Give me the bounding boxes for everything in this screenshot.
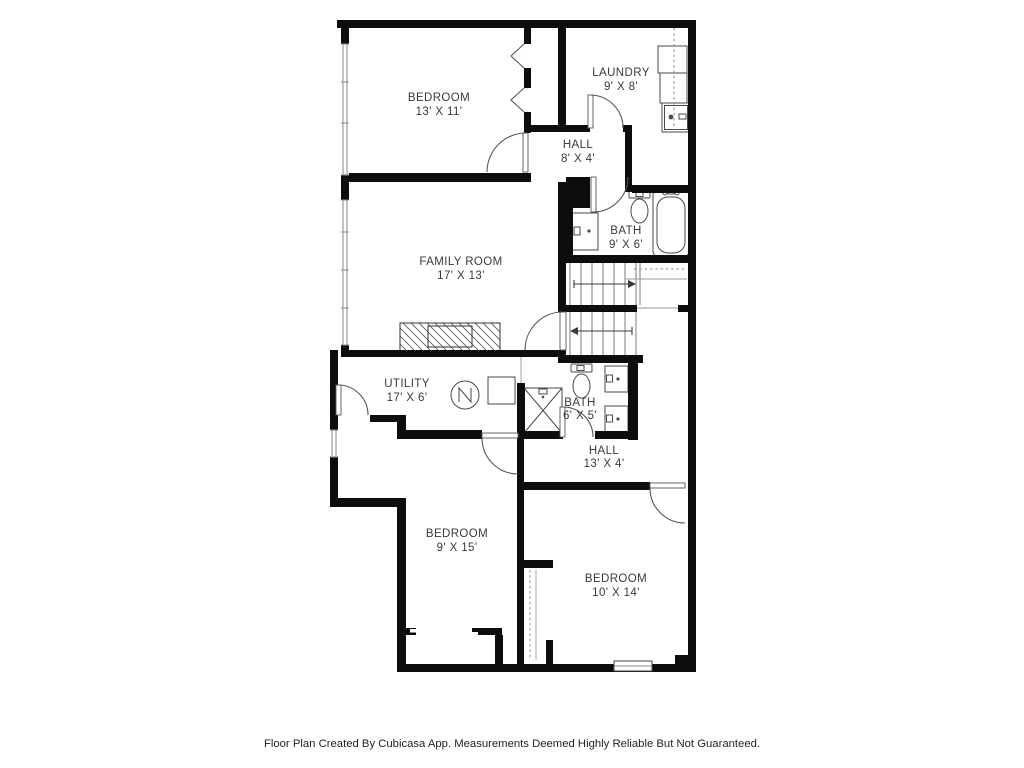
room-dims: 17' X 13' [437, 270, 485, 282]
window [330, 430, 338, 457]
room-dims: 8' X 4' [561, 153, 595, 165]
room-name: BEDROOM [408, 92, 470, 104]
room-name: FAMILY ROOM [419, 256, 502, 268]
room-name: UTILITY [384, 378, 430, 390]
fixtures-layer [400, 46, 690, 433]
door-swing [591, 177, 628, 212]
equipment-box-icon [488, 377, 515, 404]
room-name: BEDROOM [585, 573, 647, 585]
closet-rod-icon [530, 570, 536, 660]
window [341, 200, 349, 345]
door-swing [588, 95, 623, 128]
room-dims: 9' X 15' [437, 542, 478, 554]
bathtub-icon [653, 189, 689, 257]
room-label-hall-upper: HALL 8' X 4' [561, 139, 595, 165]
room-label-bedroom-left: BEDROOM 9' X 15' [426, 528, 488, 554]
room-label-bedroom-right: BEDROOM 10' X 14' [585, 573, 647, 599]
room-name: BATH [564, 397, 595, 409]
room-label-bath-lower: BATH 6' X 5' [563, 397, 597, 422]
fireplace-icon [400, 323, 500, 352]
door-swing [650, 483, 685, 523]
room-label-family-room: FAMILY ROOM 17' X 13' [419, 256, 502, 282]
door-swing [487, 133, 528, 172]
toilet-icon [571, 364, 592, 398]
room-label-utility: UTILITY 17' X 6' [384, 378, 430, 404]
room-name: LAUNDRY [592, 67, 650, 79]
toilet-icon [629, 190, 650, 223]
room-label-laundry: LAUNDRY 9' X 8' [592, 67, 650, 93]
door-swing [525, 312, 566, 350]
stair-treads-lower [570, 312, 636, 355]
door-swing [336, 385, 368, 415]
room-name: HALL [563, 139, 594, 151]
room-name: BATH [610, 225, 641, 237]
room-dims: 13' X 11' [416, 106, 463, 118]
room-name: HALL [589, 445, 620, 457]
shower-icon [524, 388, 562, 433]
window [341, 44, 349, 175]
room-dims: 6' X 5' [563, 410, 597, 422]
stairs-down-arrow [570, 327, 632, 335]
water-heater-icon [451, 381, 479, 409]
double-sink-vanity-icon [605, 366, 628, 432]
room-name: BEDROOM [426, 528, 488, 540]
sink-vanity-icon [572, 213, 598, 250]
room-dims: 17' X 6' [387, 392, 428, 404]
bifold-closet-door-icon [511, 44, 524, 112]
room-dims: 9' X 6' [609, 239, 643, 251]
floor-plan-svg: BEDROOM 13' X 11' LAUNDRY 9' X 8' HALL 8… [0, 0, 1024, 768]
room-dims: 10' X 14' [592, 587, 640, 599]
floor-plan-page: BEDROOM 13' X 11' LAUNDRY 9' X 8' HALL 8… [0, 0, 1024, 768]
room-label-bedroom-upper: BEDROOM 13' X 11' [408, 92, 470, 118]
room-label-bath-upper: BATH 9' X 6' [609, 225, 643, 251]
footer-disclaimer: Floor Plan Created By Cubicasa App. Meas… [264, 738, 760, 750]
stairs-up-arrow [574, 280, 636, 288]
room-label-hall-lower: HALL 13' X 4' [584, 445, 625, 470]
window [614, 661, 652, 671]
room-dims: 13' X 4' [584, 458, 625, 470]
room-dims: 9' X 8' [604, 81, 638, 93]
window [410, 629, 478, 636]
door-swing [482, 433, 518, 474]
